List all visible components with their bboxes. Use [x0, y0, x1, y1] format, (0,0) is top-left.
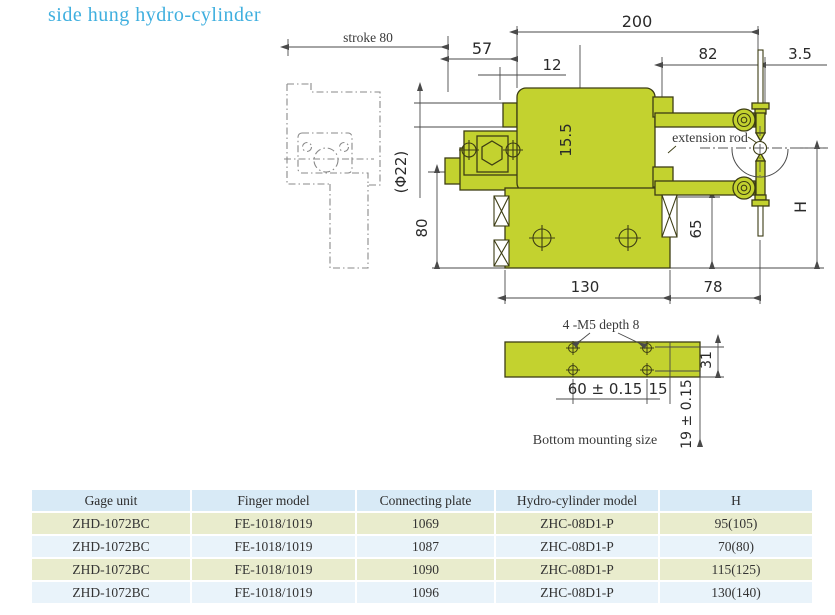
- cell-connecting-plate: 1096: [357, 582, 494, 603]
- dim-80: 80: [413, 218, 431, 237]
- cell-gage-unit: ZHD-1072BC: [32, 536, 190, 557]
- col-header-gage-unit: Gage unit: [32, 490, 190, 511]
- cell-finger-model: FE-1018/1019: [192, 559, 355, 580]
- col-header-connecting-plate: Connecting plate: [357, 490, 494, 511]
- cell-h: 70(80): [660, 536, 812, 557]
- dim-15-5: 15.5: [557, 123, 575, 156]
- dim-82: 82: [698, 45, 717, 63]
- dim-3-5: 3.5: [788, 45, 812, 63]
- cell-hydro-cylinder-model: ZHC-08D1-P: [496, 582, 658, 603]
- dim-60: 60 ± 0.15: [568, 380, 643, 398]
- table-header-row: Gage unit Finger model Connecting plate …: [32, 490, 812, 511]
- dim-phi22: (Φ22): [392, 151, 410, 194]
- label-bottom-mounting-size: Bottom mounting size: [533, 433, 657, 448]
- cell-finger-model: FE-1018/1019: [192, 536, 355, 557]
- dim-15: 15: [648, 380, 667, 398]
- col-header-hydro-cylinder-model: Hydro-cylinder model: [496, 490, 658, 511]
- cell-hydro-cylinder-model: ZHC-08D1-P: [496, 513, 658, 534]
- cell-hydro-cylinder-model: ZHC-08D1-P: [496, 536, 658, 557]
- table-row: ZHD-1072BC FE-1018/1019 1069 ZHC-08D1-P …: [32, 513, 812, 534]
- spec-table: Gage unit Finger model Connecting plate …: [30, 488, 814, 605]
- col-header-h: H: [660, 490, 812, 511]
- cell-connecting-plate: 1087: [357, 536, 494, 557]
- catalog-page: side hung hydro-cylinder: [0, 0, 835, 615]
- cell-h: 115(125): [660, 559, 812, 580]
- cell-hydro-cylinder-model: ZHC-08D1-P: [496, 559, 658, 580]
- drawing-root: stroke 80 57 200 12 82 3.5 15.5 (Φ22) 80…: [284, 12, 828, 449]
- dim-57: 57: [472, 39, 492, 58]
- dim-200: 200: [622, 12, 653, 31]
- cell-connecting-plate: 1069: [357, 513, 494, 534]
- label-m5-holes: 4 -M5 depth 8: [563, 317, 640, 332]
- label-extension-rod: extension rod: [672, 131, 748, 146]
- dim-19: 19 ± 0.15: [679, 379, 695, 449]
- col-header-finger-model: Finger model: [192, 490, 355, 511]
- table-row: ZHD-1072BC FE-1018/1019 1087 ZHC-08D1-P …: [32, 536, 812, 557]
- dim-H: H: [791, 201, 810, 213]
- table-row: ZHD-1072BC FE-1018/1019 1090 ZHC-08D1-P …: [32, 559, 812, 580]
- cell-gage-unit: ZHD-1072BC: [32, 559, 190, 580]
- cell-finger-model: FE-1018/1019: [192, 513, 355, 534]
- cell-h: 95(105): [660, 513, 812, 534]
- cell-connecting-plate: 1090: [357, 559, 494, 580]
- dim-31: 31: [699, 351, 715, 369]
- dim-78: 78: [703, 278, 722, 296]
- technical-drawing: stroke 80 57 200 12 82 3.5 15.5 (Φ22) 80…: [0, 0, 835, 482]
- phantom-side-view: [284, 83, 380, 268]
- dim-12: 12: [542, 56, 561, 74]
- cell-finger-model: FE-1018/1019: [192, 582, 355, 603]
- cell-gage-unit: ZHD-1072BC: [32, 582, 190, 603]
- dim-stroke-80: stroke 80: [343, 30, 393, 45]
- cell-gage-unit: ZHD-1072BC: [32, 513, 190, 534]
- dim-65: 65: [687, 219, 705, 238]
- cell-h: 130(140): [660, 582, 812, 603]
- dim-130: 130: [571, 278, 600, 296]
- table-row: ZHD-1072BC FE-1018/1019 1096 ZHC-08D1-P …: [32, 582, 812, 603]
